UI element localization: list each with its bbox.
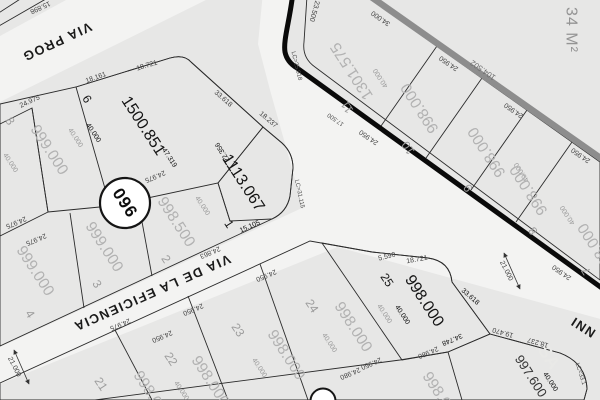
cadastral-map: 15.898VIA PROG24.9758999.00040.00024.975…: [0, 0, 600, 400]
label-area-34m2: 34 M²: [563, 7, 580, 53]
